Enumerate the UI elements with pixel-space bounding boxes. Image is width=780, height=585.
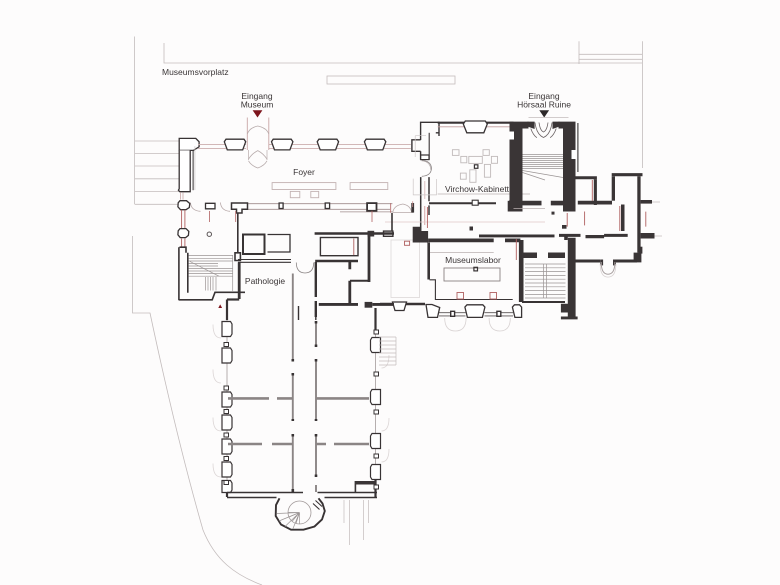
svg-text:Museum: Museum — [241, 100, 274, 110]
svg-text:Hörsaal Ruine: Hörsaal Ruine — [517, 100, 571, 110]
svg-text:Museumsvorplatz: Museumsvorplatz — [162, 67, 229, 77]
svg-text:Virchow-Kabinett: Virchow-Kabinett — [445, 184, 510, 194]
svg-text:Foyer: Foyer — [293, 167, 315, 177]
svg-text:Pathologie: Pathologie — [245, 276, 285, 286]
svg-text:Museumslabor: Museumslabor — [445, 255, 501, 265]
